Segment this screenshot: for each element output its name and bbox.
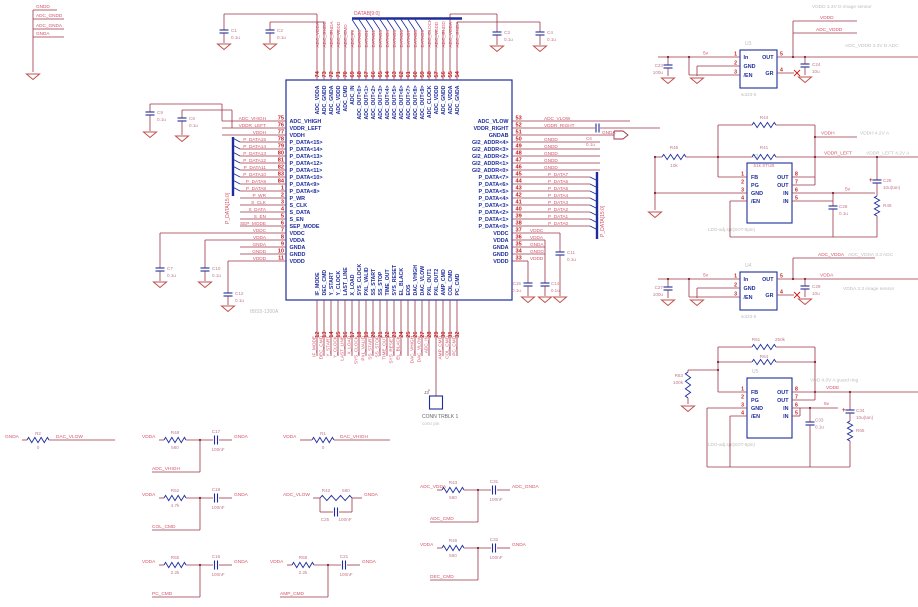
pin-name: GNDA [493, 245, 509, 251]
pin-name: ADC_OUT<4> [385, 86, 391, 120]
net-label: Y_START [326, 336, 331, 357]
junction-dot [717, 361, 719, 363]
res-ref: R65 [856, 428, 865, 433]
cap-ref: C10 [212, 266, 221, 271]
net-label: P_DATA3 [548, 200, 569, 205]
net-label: VDDC [530, 228, 544, 233]
cap-value: 100nF [211, 572, 224, 577]
pin-name: DEC_CMD [322, 270, 328, 296]
net-label: 5v [845, 187, 851, 193]
cap-ref: C12 [235, 291, 244, 296]
pin-name: AMP_CMD [441, 269, 447, 295]
net-label: VDDR_RIGHT [544, 123, 575, 128]
net-label: GNDD [544, 137, 558, 142]
cap-ref: C16 [212, 554, 221, 559]
net-label: VDDA [142, 559, 156, 565]
pin-number: 63 [392, 71, 398, 77]
pin-number: 5 [281, 214, 284, 220]
pin-name: VDDR_LEFT [290, 126, 322, 132]
net-label: P_DATA4 [548, 193, 569, 198]
net-label: GNDA [234, 492, 249, 498]
net-label: GNDD [252, 249, 266, 254]
net-label: DATAB2 [371, 30, 376, 48]
reg-pin-label: GND [751, 406, 763, 412]
cap-value: 100nF [338, 517, 351, 522]
ground-icon [154, 282, 167, 288]
net-label: DEC_CMD [319, 335, 324, 359]
polarity-plus: + [842, 408, 846, 414]
cap-value: 0.1u [157, 117, 166, 122]
res-value: 10k [670, 163, 678, 168]
pin-name: ADC_OUT<5> [392, 86, 398, 120]
pin-number: 76 [278, 123, 284, 129]
net-label: GNDA [234, 559, 249, 565]
connector-name: CONN TRBLK 1 [422, 414, 459, 420]
cap-ref: C33 [815, 418, 824, 423]
reg-pin-label: OUT [777, 175, 789, 181]
reg-pin-label: OUT [777, 390, 789, 396]
pin-number: 55 [448, 71, 454, 77]
reg-pin-label: GR [765, 71, 773, 77]
net-label: PXL_VALID [361, 335, 366, 360]
cap-value: 0.1u [277, 35, 286, 40]
pin-number: 9 [281, 242, 284, 248]
net-label: DEC_CMD [430, 574, 454, 580]
net-label: VDDA [253, 235, 267, 240]
ground-icon [27, 74, 40, 80]
pin-name: VDDA [290, 238, 305, 244]
net-label: VDDD [253, 256, 267, 261]
resistor-symbol [292, 562, 314, 567]
junction-dot [654, 156, 656, 158]
connector-J2[interactable]: -J2CONN TRBLK 1conn pin [422, 388, 459, 426]
net-label: P_DATA0 [548, 221, 569, 226]
net-label: S_CLK [251, 200, 267, 205]
net-label: DAC_VLOW [56, 434, 83, 440]
pin-name: PXL_OUT2 [434, 269, 440, 296]
pin-name: ADC_OUT<1> [364, 86, 370, 120]
connector-desc: conn pin [422, 421, 440, 426]
res-ref: R64 [760, 354, 769, 359]
pin-name: IF_MODE [315, 272, 321, 296]
net-label: DATAB3 [378, 30, 383, 48]
pin-number: 74 [315, 70, 321, 77]
net-label: EL_BLACK [396, 335, 401, 360]
rc-filter-R58[interactable]: VDDAGNDAR582.2kC21100nFAMP_CMD [270, 554, 377, 597]
cap-ref: C2 [277, 28, 283, 33]
bus-entry [408, 20, 415, 31]
rc-filter-R43[interactable]: ADC_VDDAADC_GNDAR43560C31100nFADC_CMD [420, 479, 539, 522]
pin-name: VDDC [493, 231, 508, 237]
pin-number: 75 [278, 116, 284, 122]
cap-value: 0.1u [189, 123, 198, 128]
res-value: 560 [171, 445, 179, 450]
reg-pin-label: IN [783, 406, 788, 412]
pin-number: 73 [322, 71, 328, 77]
junction-dot [717, 156, 719, 158]
junction-dot [814, 361, 816, 363]
cap-value: 100u [653, 292, 664, 297]
cap-ref: C23 [655, 63, 664, 68]
pin-number: 62 [399, 71, 405, 77]
reg-pin-label: In [744, 55, 749, 61]
pin-name: P_DATA<9> [290, 182, 320, 188]
net-label: X_LOAD [347, 335, 352, 354]
pin-name: GNDAB [489, 133, 509, 139]
pin-name: VDDH [290, 133, 305, 139]
net-label: VDDR_LEFT [824, 151, 852, 157]
capacitor-C7[interactable]: C70.1u [154, 233, 177, 288]
pin-name: DAC_VLOW [420, 266, 426, 296]
pin-name: ADC_GNDD [322, 85, 328, 115]
pin-number: 59 [420, 71, 426, 77]
pin-number: 6 [281, 221, 284, 227]
rc-filter-R55[interactable]: VDDAGNDAR552.2kC16100nFPC_CMD [142, 554, 249, 597]
pin-name: P_DATA<1> [478, 217, 508, 223]
cap-ref: C4 [547, 30, 553, 35]
pin-name: VDDD [493, 259, 508, 265]
cap-value: 0.1u [586, 142, 595, 147]
net-label: DATAB5 [392, 30, 397, 48]
net-label: ADC_GNDD [441, 21, 446, 48]
pin-number: 57 [434, 71, 440, 77]
cap-value: 0.1u [512, 288, 521, 293]
cap-ref: C9 [157, 110, 163, 115]
ground-icon [144, 132, 157, 138]
cap-ref: C6 [586, 136, 592, 141]
cap-ref: C18 [212, 487, 221, 492]
cap-value: 0.1u [231, 35, 240, 40]
pin-name: ADC_OUT<7> [406, 86, 412, 120]
net-label: P_DATA1 [548, 214, 569, 219]
regulator-U2[interactable]: FB1PG2GND3/EN4OUT8OUT7IN6IN5U2LDO-adj.sp… [649, 115, 918, 237]
cap-ref: C3 [504, 30, 510, 35]
net-label: DATAB0 [357, 30, 362, 48]
net-label: DAC_VHIGH [410, 336, 415, 363]
cap-value: 100nF [211, 447, 224, 452]
reg-pin-label: /EN [744, 73, 753, 79]
reg-pin-label: IN [783, 199, 788, 205]
net-label: TIME_OUT [382, 336, 387, 360]
res-ref: R44 [760, 115, 769, 120]
pin-name: GI2_ADDR<4> [472, 140, 509, 146]
net-label: ADC_VHIGH [152, 466, 181, 472]
net-label: VDDA [142, 434, 156, 440]
res-ref: R45 [670, 145, 679, 150]
res-ref: R48 [171, 430, 180, 435]
regulator-U3[interactable]: InGND/ENOUTGR12354U3sot23-55vC23100uC241… [653, 4, 918, 97]
ground-icon [264, 44, 277, 50]
cap-ref: C15 [513, 281, 522, 286]
net-label: ADC_GNDA [455, 21, 460, 48]
net-label: COL_CMD [445, 335, 450, 359]
junction-dot [792, 278, 794, 280]
net-label: P_WR [252, 193, 266, 198]
reg-ref: U3 [745, 41, 752, 47]
pin-number: 68 [357, 71, 363, 77]
pin-name: P_DATA<11> [290, 168, 323, 174]
pin-name: GI2_ADDR<2> [472, 154, 509, 160]
net-label: Y_CLOCK [333, 335, 338, 358]
rc-filter-R48[interactable]: VDDAGNDAR48560C17100nFADC_VHIGH [142, 429, 249, 472]
net-label: IF_MODE [312, 336, 317, 357]
reg-footprint: sot23-5 [741, 92, 757, 97]
pin-name: GI2_ADDR<1> [472, 161, 509, 167]
net-label: COL_CMD [152, 524, 176, 530]
net-label: GNDA [252, 242, 266, 247]
rc-filter-R46[interactable]: VDDAGNDAR46560C32100nFDEC_CMD [420, 537, 527, 580]
pin-name: P_DATA<8> [290, 189, 320, 195]
pin-name: PXL_OUT1 [427, 269, 433, 296]
net-label: P_DATA15 [243, 137, 266, 142]
ground-icon [691, 300, 704, 306]
net-label: ADC_CMD [343, 24, 348, 48]
pin-name: ADC_GNDA [455, 85, 461, 115]
pin-name: P_DATA<2> [478, 210, 508, 216]
net-label: GNDD [544, 144, 558, 149]
capacitor-C15[interactable]: C150.1u [512, 261, 534, 303]
cap-value: 0.1u [567, 257, 576, 262]
pin-name: S_EN [290, 217, 304, 223]
ground-icon [662, 300, 675, 306]
net-label: GNDD [36, 4, 50, 9]
net-label: S_EN [254, 214, 266, 219]
reg-pin-label: OUT [777, 398, 789, 404]
comment: VDDH 4.2V A [860, 131, 890, 137]
bus-label: P_DATA[15:0] [600, 205, 606, 237]
net-label: AMP_CMD [438, 335, 443, 359]
res-value: 560 [342, 488, 350, 493]
pin-number: 2 [741, 180, 744, 186]
bus-entry [394, 20, 401, 31]
net-label: ADC_GNDD [36, 13, 63, 18]
offpage-arrow-icon [614, 131, 628, 139]
pin-name: P_DATA<13> [290, 154, 323, 160]
pin-number: 3 [281, 200, 284, 206]
res-ref: R63 [675, 373, 684, 378]
pin-number: 8 [281, 235, 284, 241]
rc-filter-R1[interactable]: VDDADAC_VHIGHR10 [283, 431, 390, 450]
net-label: VDDA [420, 542, 434, 548]
pin-name: GNDD [493, 252, 509, 258]
cap-ref: C27 [655, 285, 664, 290]
pin-name: X_LOAD [350, 274, 356, 295]
reg-pin-label: GR [765, 293, 773, 299]
net-label: DATAB6 [399, 30, 404, 48]
res-value: 2.2k [171, 570, 180, 575]
junction-dot [688, 56, 690, 58]
net-label: DATAB9 [420, 30, 425, 48]
net-label: VDDD [530, 256, 544, 261]
resistor-symbol [320, 495, 352, 500]
chip-U1[interactable]: IBIS5-1300A75ADC_VHIGHADC_VHIGH76VDDR_LE… [160, 11, 660, 396]
net-label: AMP_CMD [280, 591, 305, 597]
net-label: DATAB8 [413, 30, 418, 48]
cap-ref: C8 [189, 116, 195, 121]
pin-number: 78 [278, 137, 284, 143]
resistor-symbol [27, 437, 49, 442]
net-label: P_DATA12 [243, 158, 266, 163]
rc-filter-R42[interactable]: ADC_VLOWGNDAR42560C25100nF [283, 488, 379, 522]
pin-name: ADC_OUT<3> [378, 86, 384, 120]
resistor-symbol [752, 122, 776, 127]
capacitor-C12[interactable]: C120.1u [222, 261, 245, 312]
net-label: GNDA [362, 559, 377, 565]
cap-value: 0.1u [815, 425, 824, 430]
net-label: ADC_VLOW [283, 492, 310, 498]
res-ref: R58 [299, 555, 308, 560]
ground-icon [691, 78, 704, 84]
pin-name: ADC_VLOW [478, 119, 510, 125]
pin-number: 64 [385, 70, 391, 77]
net-label: P_DATA6 [548, 179, 569, 184]
junction-dot [792, 56, 794, 58]
pin-name: ADC_VDDA [448, 85, 454, 114]
pin-number: 1 [281, 186, 284, 192]
bus-entry [359, 20, 366, 31]
reg-pin-label: OUT [762, 55, 774, 61]
pin-name: ADC_OUT<6> [399, 86, 405, 120]
net-label: PC_CMD [452, 335, 457, 355]
bus-entry [387, 20, 394, 31]
reg-pin-label: PG [751, 398, 759, 404]
ground-icon [539, 297, 552, 303]
res-ref: R41 [760, 145, 769, 150]
res-value: 2.2k [299, 570, 308, 575]
pin-name: ADC_GNDD [441, 85, 447, 115]
pin-name: EL_BLACK [399, 268, 405, 296]
cap-ref: C32 [490, 537, 499, 542]
cap-ref: C28 [839, 204, 848, 209]
cap-value: 0.1u [504, 37, 513, 42]
resistor-symbol [874, 196, 879, 216]
net-label: GNDD [544, 151, 558, 156]
res-value: 560 [449, 553, 457, 558]
reg-pin-label: /EN [751, 199, 760, 205]
capacitor-C10[interactable]: C100.1u [199, 240, 222, 288]
pin-name: P_DATA<10> [290, 175, 323, 181]
pin-number: 61 [406, 71, 412, 77]
net-label: GNDD [544, 158, 558, 163]
pin-name: P_DATA<3> [478, 203, 508, 209]
net-label: ADC_IN [424, 336, 429, 353]
cap-value: 0.1u [235, 298, 244, 303]
ground-icon [649, 212, 662, 218]
bus-entry [234, 139, 241, 143]
net-label: DAC_VLOW [417, 335, 422, 362]
pin-name: LAST_LINE [343, 267, 349, 296]
bus-entry [380, 20, 387, 31]
pin-name: PXL_VALID [364, 267, 370, 295]
pin-name: ADC_OUT<8> [413, 86, 419, 120]
resistor-symbol [662, 154, 686, 159]
pin-number: 2 [281, 193, 284, 199]
net-label: P_DATA8 [246, 186, 267, 191]
cap-value: 10u(tan) [883, 185, 901, 190]
res-value: 560 [449, 495, 457, 500]
res-ref: R46 [449, 538, 458, 543]
res-ref: R1 [320, 431, 326, 436]
pin-name: P_DATA<15> [290, 140, 323, 146]
ground-icon [176, 136, 189, 142]
bus-entry [234, 181, 241, 185]
resistor-symbol [312, 437, 334, 442]
pin-number: 70 [343, 71, 349, 77]
pin-name: VDDD [290, 259, 305, 265]
cap-ref: C14 [551, 281, 560, 286]
pin-name: PC_CMD [455, 273, 461, 295]
bus-entry [234, 146, 241, 150]
res-ref: R42 [322, 488, 331, 493]
bus-entry [234, 188, 241, 192]
net-label: VDDA [270, 559, 284, 565]
regulator-U4[interactable]: InGND/ENOUTGR12354U4sot23-55vC27100uC291… [653, 252, 918, 319]
bus-label: DATAB[9:0] [354, 11, 380, 17]
net-label: ADC_VLOW [544, 116, 571, 121]
pin-name: ADC_VDDA [315, 85, 321, 114]
cap-value: 100nF [339, 572, 352, 577]
cap-ref: C24 [812, 62, 821, 67]
res-ref: R61 [752, 337, 761, 342]
junction-dot [667, 278, 669, 280]
rc-filter-R52[interactable]: VDDAGNDAR524.7kC18100nFCOL_CMD [142, 487, 249, 530]
pin-number: 56 [441, 71, 447, 77]
net-label: ADC_VDDD [816, 27, 843, 33]
res-ref: R43 [449, 480, 458, 485]
cap-ref: C25 [321, 517, 330, 522]
res-ref: R49 [883, 203, 892, 208]
net-label: SS_START [368, 336, 373, 360]
reg-ref: U5 [752, 369, 759, 375]
comment: ADC_VDDD 3.3V D ADC [845, 43, 899, 49]
net-label: 5v [824, 401, 830, 407]
pin-number: 79 [278, 144, 284, 150]
net-label: SYS_RESET [389, 336, 394, 364]
net-label: VDDR_LEFT [239, 123, 266, 128]
net-label: P_DATA5 [548, 186, 569, 191]
net-label: 5v [703, 51, 709, 57]
capacitor-C8[interactable]: C80.1u [176, 110, 233, 142]
pin-name: S_DATA [290, 210, 311, 216]
reg-footprint: sot23-5 [741, 314, 757, 319]
reg-pin-label: OUT [777, 183, 789, 189]
pin-number: 80 [278, 151, 284, 157]
pin-number: 71 [336, 71, 342, 77]
regulator-U5[interactable]: FB1PG2GND3/EN4OUT8OUT7IN6IN5U5LDO-adj.sp… [673, 337, 918, 467]
cap-value: 0.1u [839, 211, 848, 216]
net-label: ADC_VDDA [448, 21, 453, 47]
pin-name: Y_START [329, 271, 335, 295]
pin-number: 10 [278, 249, 284, 255]
net-label: P_DATA2 [548, 207, 569, 212]
resistor-symbol [752, 344, 776, 349]
pin-name: ADC_VHIGH [290, 119, 322, 125]
connector-body[interactable] [430, 396, 443, 409]
net-label: ADC_GNDA [329, 21, 334, 48]
rc-filter-R2[interactable]: GNDADAC_VLOWR20 [5, 431, 115, 450]
resistor-symbol [685, 372, 690, 398]
cap-value: 10u [812, 291, 820, 296]
net-label: GNDA [234, 434, 249, 440]
net-label: LAST_LINE [340, 336, 345, 361]
pin-number: 2 [741, 395, 744, 401]
ground-icon [799, 77, 812, 83]
net-label: DATAB4 [385, 30, 390, 48]
reg-pin-label: PG [751, 183, 759, 189]
ground-net-stack: GNDDADC_GNDDADC_GNDAGNDA [27, 4, 65, 79]
ground-icon [522, 297, 535, 303]
cap-ref: C7 [167, 266, 173, 271]
